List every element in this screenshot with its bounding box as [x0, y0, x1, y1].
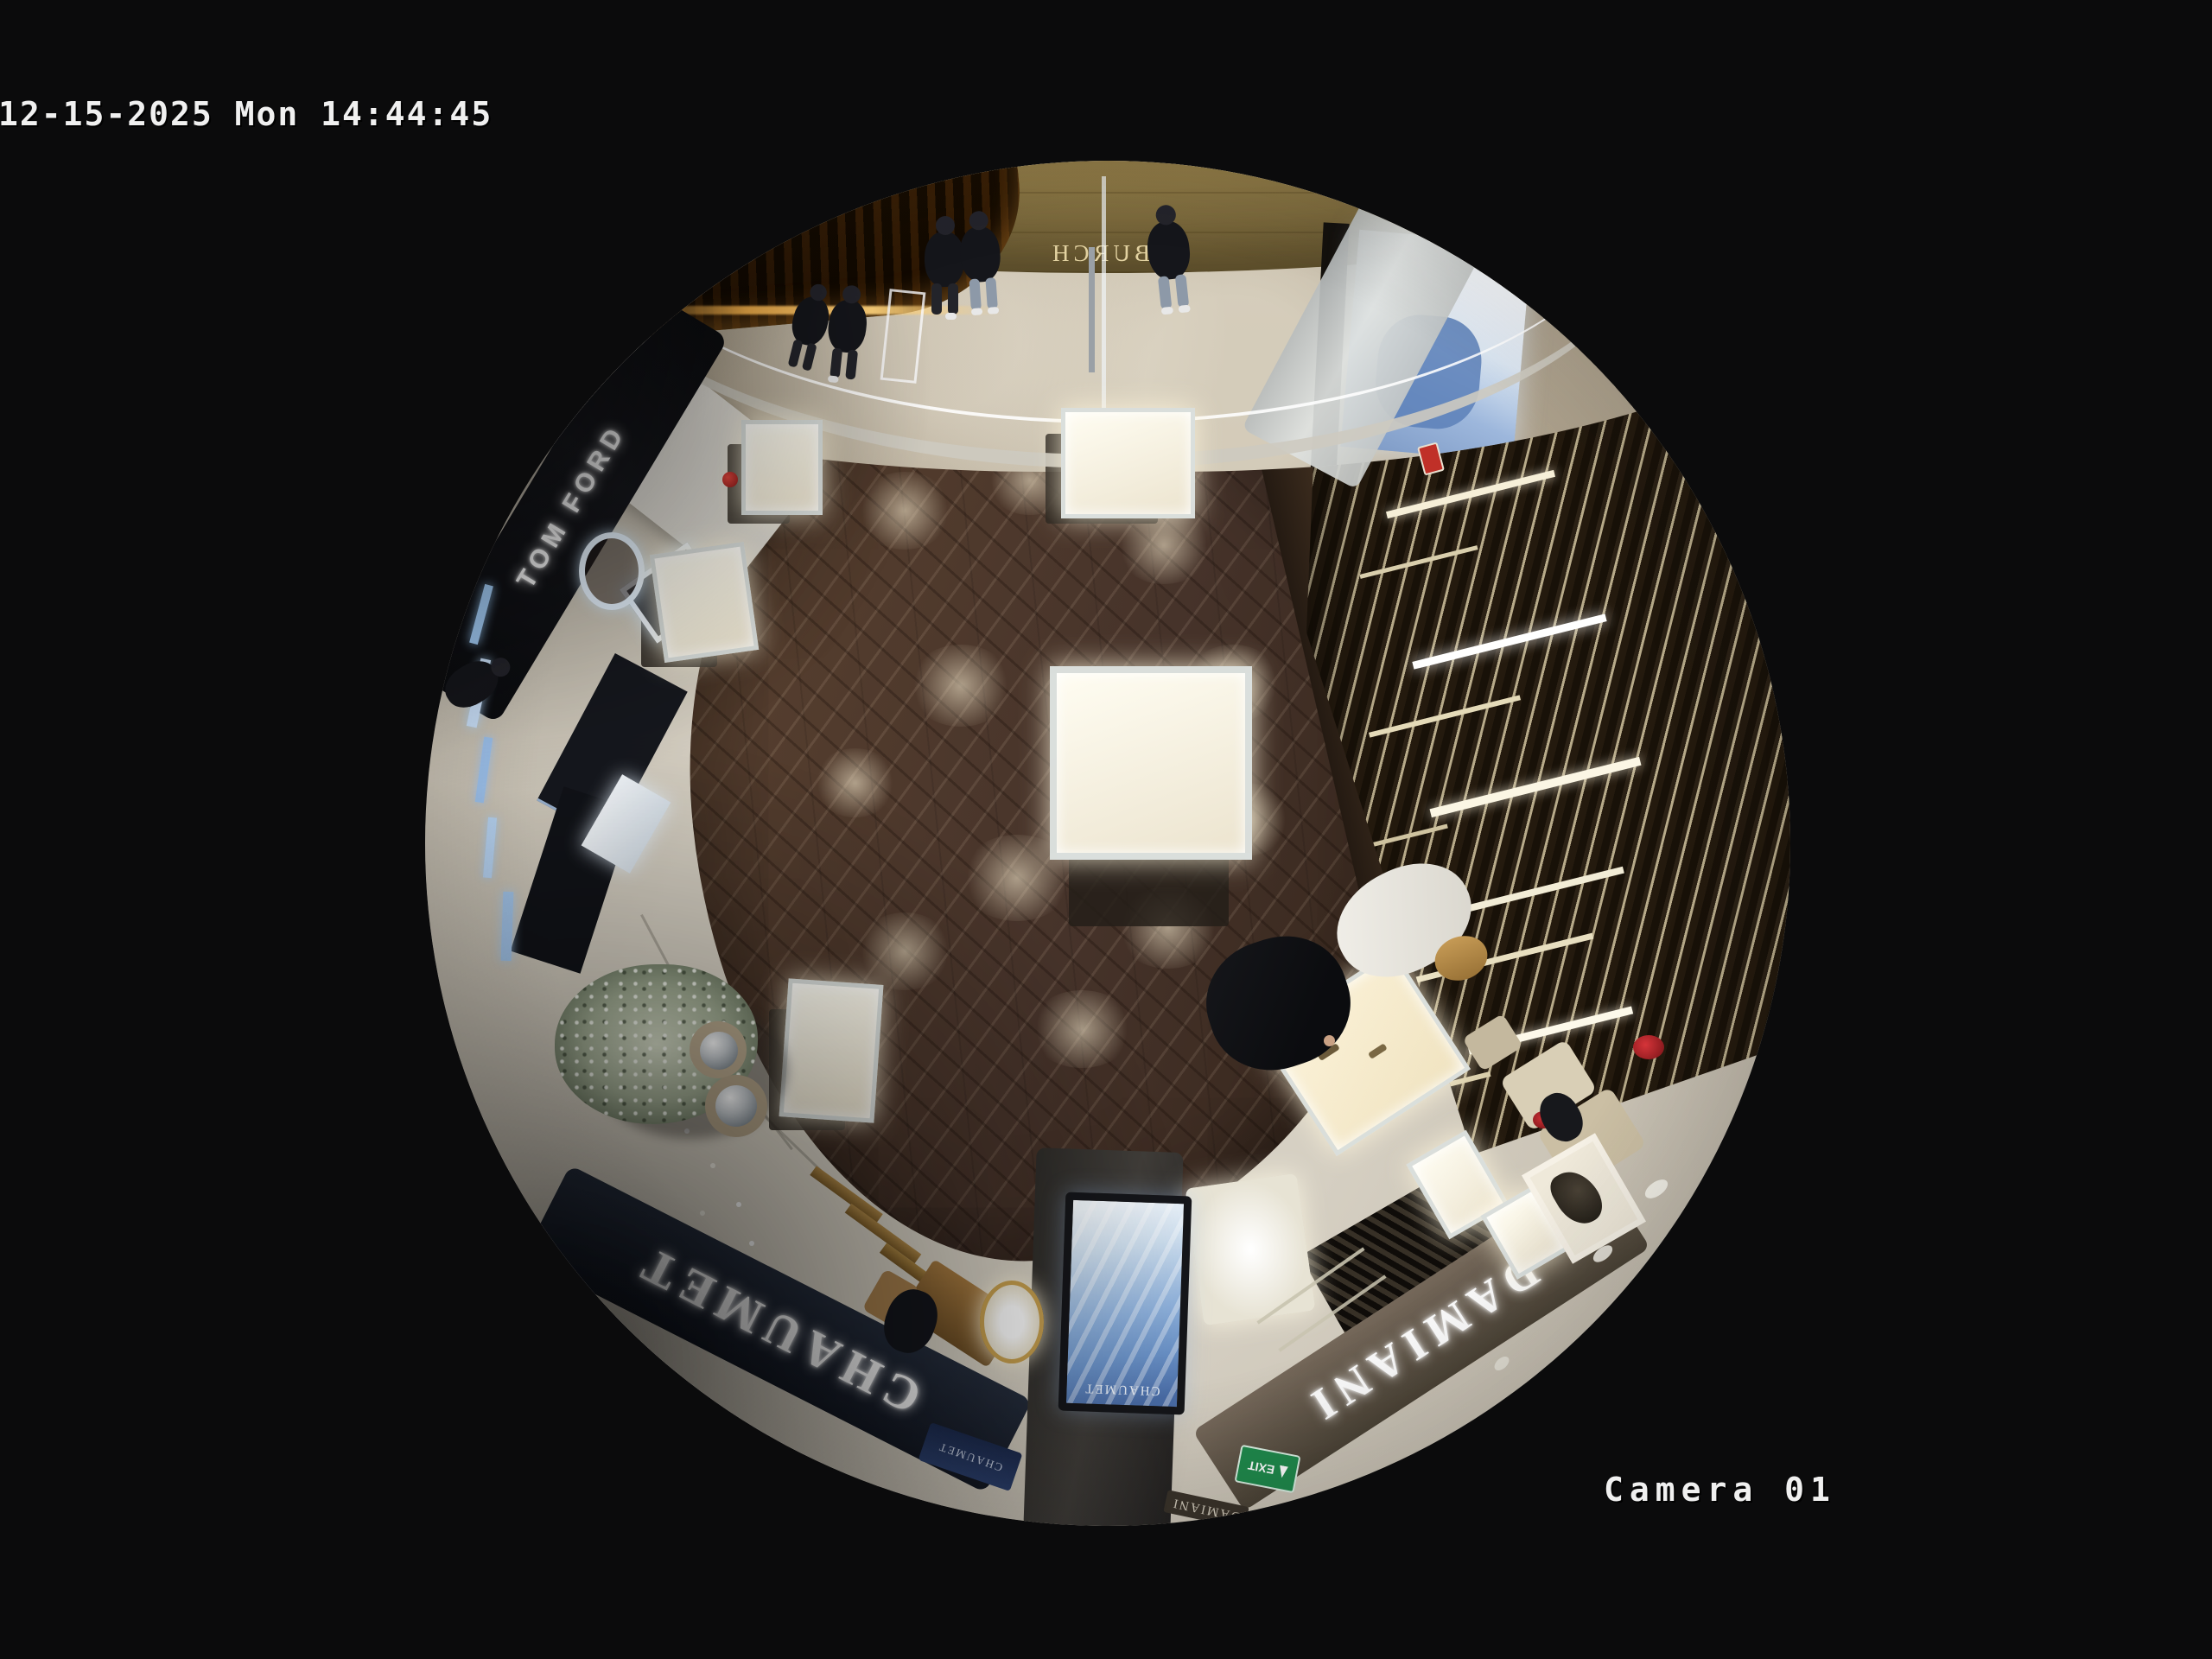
timestamp-text: 12-15-2025 Mon 14:44:45 [0, 95, 493, 133]
timestamp: 12-15-2025 Mon 14:44:45 [0, 95, 493, 133]
fisheye-vignette [425, 161, 1790, 1526]
camera-label: Camera 01 [1604, 1471, 1836, 1509]
cctv-frame: { "osd": { "timestamp": "12-15-2025 Mon … [0, 0, 2212, 1659]
fisheye-view: BURCH TOM FORD TF [425, 161, 1790, 1526]
camera-label-text: Camera 01 [1604, 1471, 1836, 1509]
